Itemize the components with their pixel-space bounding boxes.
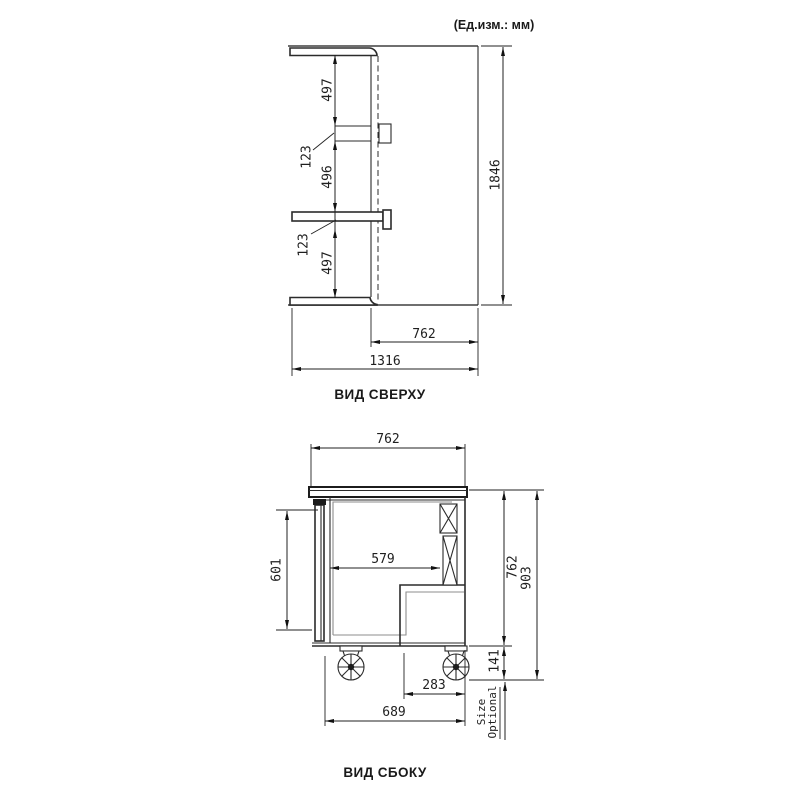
dim-283: 283 — [422, 678, 445, 693]
dim-903: 903 — [520, 566, 535, 589]
worktop — [309, 487, 467, 497]
top-view: 497 123 496 123 497 1846 762 1316 ВИД СВ… — [288, 46, 512, 402]
side-view-title: ВИД СБОКУ — [343, 765, 427, 780]
dim-123-upper: 123 — [300, 145, 315, 168]
cross-braced-column — [440, 504, 457, 585]
top-view-upper-bar — [290, 48, 377, 56]
upper-bracket-endcap — [379, 124, 391, 143]
dim-762-side-right: 762 — [506, 555, 521, 578]
top-view-title: ВИД СВЕРХУ — [334, 387, 425, 402]
dim-579: 579 — [371, 552, 394, 567]
side-view: 762 601 579 762 903 141 Size Optiona — [270, 432, 545, 780]
dim-123-lower: 123 — [297, 233, 312, 256]
technical-drawing-page: (Ед.изм.: мм) 497 123 496 — [0, 0, 800, 800]
caster-left — [338, 646, 364, 680]
door-panel — [315, 505, 324, 641]
leader-123-lower — [311, 220, 336, 234]
drawing-canvas: (Ед.изм.: мм) 497 123 496 — [0, 0, 800, 800]
dim-762-side-top: 762 — [376, 432, 399, 447]
dim-497-upper: 497 — [321, 78, 336, 101]
side-dim-762-top — [311, 444, 465, 486]
size-optional-line2: Optional — [486, 686, 499, 739]
dim-689: 689 — [382, 705, 405, 720]
size-optional-annotation — [500, 682, 505, 740]
dim-496: 496 — [321, 165, 336, 188]
compressor-step — [400, 585, 465, 646]
dim-1316: 1316 — [369, 354, 400, 369]
dim-497-lower: 497 — [321, 251, 336, 274]
units-label: (Ед.изм.: мм) — [454, 18, 535, 32]
middle-shelf-endcap — [383, 210, 391, 229]
dim-601: 601 — [270, 558, 285, 581]
door-hinge — [313, 499, 326, 505]
dim-1846: 1846 — [489, 159, 504, 190]
dim-762-top-view: 762 — [412, 327, 435, 342]
top-view-lower-bar — [290, 298, 377, 306]
leader-123-upper — [313, 133, 334, 150]
dim-141: 141 — [488, 649, 503, 672]
middle-shelf — [292, 212, 383, 221]
